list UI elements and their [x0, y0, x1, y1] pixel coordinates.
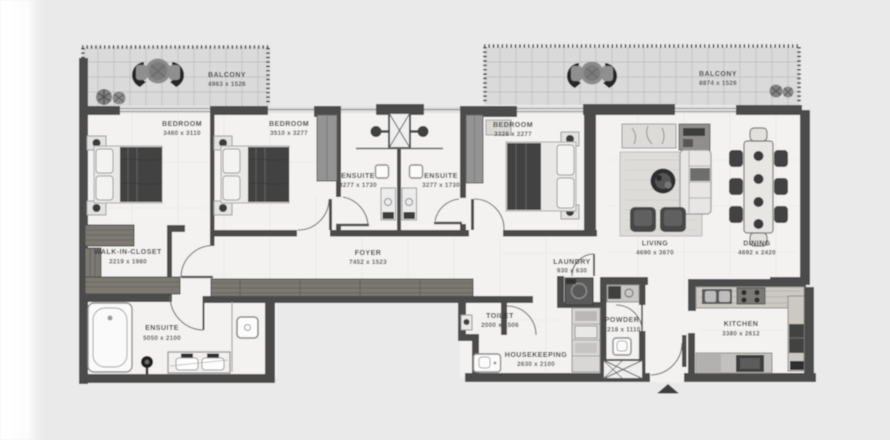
svg-text:5050 x 2100: 5050 x 2100: [143, 335, 181, 342]
svg-text:4963 x 1526: 4963 x 1526: [208, 81, 246, 88]
svg-text:TOILET: TOILET: [486, 313, 514, 320]
svg-text:2219 x 1980: 2219 x 1980: [109, 259, 147, 266]
svg-text:WALK-IN-CLOSET: WALK-IN-CLOSET: [94, 249, 162, 256]
svg-text:8874 x 1526: 8874 x 1526: [699, 80, 737, 87]
svg-text:3328 x 2277: 3328 x 2277: [494, 131, 532, 138]
svg-text:ENSUITE: ENSUITE: [424, 173, 458, 180]
svg-text:KITCHEN: KITCHEN: [724, 321, 759, 328]
svg-text:BALCONY: BALCONY: [699, 71, 737, 78]
svg-text:ENSUITE: ENSUITE: [341, 173, 375, 180]
svg-text:2000 x 1506: 2000 x 1506: [481, 322, 519, 329]
svg-text:3510 x 3277: 3510 x 3277: [270, 130, 308, 137]
svg-text:BALCONY: BALCONY: [208, 72, 246, 79]
svg-text:2630 x 2100: 2630 x 2100: [517, 361, 555, 368]
svg-text:BEDROOM: BEDROOM: [162, 121, 202, 128]
svg-text:3277 x 1730: 3277 x 1730: [339, 182, 377, 189]
svg-text:ENSUITE: ENSUITE: [145, 325, 179, 332]
svg-text:3460 x 3110: 3460 x 3110: [163, 130, 201, 137]
svg-text:HOUSEKEEPING: HOUSEKEEPING: [505, 352, 567, 359]
svg-text:POWDER: POWDER: [605, 317, 640, 324]
svg-text:LAUNDRY: LAUNDRY: [553, 259, 590, 266]
svg-text:3380 x 2612: 3380 x 2612: [722, 331, 760, 338]
svg-text:4692 x 2420: 4692 x 2420: [738, 250, 776, 257]
svg-text:BEDROOM: BEDROOM: [269, 121, 309, 128]
svg-text:3277 x 1730: 3277 x 1730: [422, 182, 460, 189]
svg-text:4690 x 3670: 4690 x 3670: [636, 250, 674, 257]
svg-text:930 x 630: 930 x 630: [557, 268, 588, 275]
svg-text:FOYER: FOYER: [355, 250, 382, 257]
svg-text:LIVING: LIVING: [642, 241, 668, 248]
svg-text:BEDROOM: BEDROOM: [493, 122, 533, 129]
svg-text:2218 x 1110: 2218 x 1110: [603, 327, 640, 334]
svg-text:7452 x 1523: 7452 x 1523: [349, 259, 387, 266]
svg-text:DINING: DINING: [743, 241, 771, 248]
